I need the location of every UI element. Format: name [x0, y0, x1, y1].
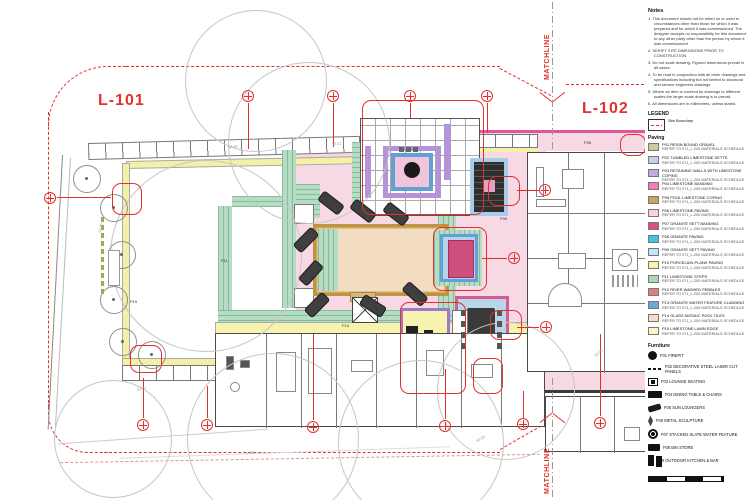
- paving-swatch-P10: [648, 261, 659, 269]
- keynote-bubble: [517, 418, 529, 430]
- paving-ref: REFER TO 071_L-200 MATERIALS SCHEDULE: [662, 147, 744, 151]
- furniture-legend-row-F01: F01 FIREPIT: [648, 351, 748, 360]
- keynote-leader: [313, 334, 314, 420]
- keynote-bubble: [439, 420, 451, 432]
- paving-swatch-P15: [648, 327, 659, 335]
- paving-swatch-P02: [648, 156, 659, 164]
- keynote-leader: [517, 327, 539, 328]
- metal-sculpture: [108, 250, 120, 286]
- slab-path-right: [478, 134, 538, 148]
- furniture-label: F03 LOUNGE SEATING: [661, 379, 705, 384]
- furniture-legend-row-F03: F03 LOUNGE SEATING: [648, 377, 748, 386]
- furniture-legend-title: Furniture: [648, 343, 748, 349]
- dining-chair: [497, 343, 502, 349]
- stair-hatch: [612, 275, 638, 287]
- site-boundary-line: [566, 84, 654, 85]
- furniture-legend-row-F08: F08 BIN STORE: [648, 443, 748, 452]
- furniture-legend-list: F01 FIREPITF02 DECORATIVE STEEL LASER CU…: [648, 351, 748, 464]
- keynote-leader: [143, 378, 144, 418]
- furniture-label: F04 DINING TABLE & CHAIRS: [665, 392, 722, 397]
- notes-title: Notes: [648, 8, 748, 14]
- tree-center: [85, 177, 88, 180]
- paving-legend-row-P08: P08 GRANITE PAVINGREFER TO 071_L-200 MAT…: [648, 235, 748, 246]
- revision-cloud: [490, 310, 522, 340]
- site-boundary-label: Site Boundary: [668, 119, 693, 124]
- paving-code-label: P10: [342, 323, 349, 328]
- title-block-panel: Notes 1. This document should not be rel…: [645, 0, 750, 500]
- paving-code-label: P15: [130, 299, 137, 304]
- metal-sculpture-icon: [648, 415, 653, 426]
- paving-swatch-P04: [648, 182, 659, 190]
- dining-table-indoor: [558, 253, 586, 269]
- paving-ref: REFER TO 071_L-200 MATERIALS SCHEDULE: [662, 161, 744, 165]
- paving-ref: REFER TO 071_L-200 MATERIALS SCHEDULE: [662, 306, 744, 310]
- keynote-leader: [523, 391, 524, 418]
- furniture-legend-row-F09: F09 OUTDOOR KITCHEN & BAR: [648, 456, 748, 465]
- keynote-bubble: [201, 419, 213, 431]
- revision-cloud: [433, 227, 487, 291]
- paving-labels: P07 GRANITE SETT BANDINGREFER TO 071_L-2…: [662, 222, 744, 231]
- furniture-legend-row-F04: F04 DINING TABLE & CHAIRS: [648, 391, 748, 400]
- paving-ref: REFER TO 071_L-200 MATERIALS SCHEDULE: [662, 200, 744, 204]
- tree-center: [120, 253, 123, 256]
- paving-legend-row-P02: P02 TUMBLED LIMESTONE SETTSREFER TO 071_…: [648, 156, 748, 167]
- paving-code-label: P06: [584, 140, 591, 145]
- keynote-bubble: [307, 421, 319, 433]
- paving-labels: P10 PORCELAIN PLANK PAVINGREFER TO 071_L…: [662, 261, 744, 270]
- keynote-bubble: [44, 192, 56, 204]
- paving-swatch-P03: [648, 169, 659, 177]
- matchline-mark: [553, 92, 565, 102]
- keynote-leader: [482, 258, 507, 259]
- paving-swatch-P11: [648, 275, 659, 283]
- furniture-label: F01 FIREPIT: [660, 353, 684, 358]
- paving-swatch-P08: [648, 235, 659, 243]
- keynote-leader: [57, 197, 111, 198]
- paving-swatch-P09: [648, 248, 659, 256]
- spot-level-label: 52.90: [245, 451, 255, 455]
- paving-legend-title: Paving: [648, 135, 748, 141]
- revision-cloud: [362, 100, 484, 215]
- paving-legend-row-P12: P12 RIVER WASHED PEBBLESREFER TO 071_L-2…: [648, 288, 748, 299]
- paving-labels: P06 LIMESTONE PAVINGREFER TO 071_L-200 M…: [662, 209, 744, 218]
- revision-cloud: [473, 358, 503, 394]
- keynote-leader: [333, 103, 334, 147]
- note-item-1: 1. This document should not be relied on…: [648, 16, 748, 46]
- note-item-4: 4. To be read in conjunction with all ot…: [648, 72, 748, 87]
- paving-labels: P13 GRANITE WATER FEATURE CLADDINGREFER …: [662, 301, 744, 310]
- keynote-leader: [445, 369, 446, 419]
- paving-labels: P01 RESIN BOUND GRAVELREFER TO 071_L-200…: [662, 143, 744, 152]
- keynote-bubble: [327, 90, 339, 102]
- tree-center: [112, 298, 115, 301]
- notes-list: 1. This document should not be relied on…: [648, 16, 748, 106]
- keynote-leader: [487, 103, 488, 133]
- keynote-leader: [207, 386, 208, 418]
- paving-legend-row-P14: P14 GLASS MOSAIC POOL TILESREFER TO 071_…: [648, 314, 748, 325]
- paving-legend-row-P15: P15 LIMESTONE LAWN EDGEREFER TO 071_L-20…: [648, 327, 748, 338]
- furniture-label: F05 SUN LOUNGERS: [664, 405, 705, 410]
- paving-ref: REFER TO 071_L-200 MATERIALS SCHEDULE: [662, 213, 744, 217]
- paving-swatch-P06: [648, 209, 659, 217]
- keynote-leader: [248, 103, 249, 149]
- matchline-label-top: MATCHLINE: [544, 10, 551, 80]
- paving-legend-list: P01 RESIN BOUND GRAVELREFER TO 071_L-200…: [648, 143, 748, 338]
- furniture-legend-row-F07: F07 STACKED SLATE WATER FEATURE: [648, 430, 748, 439]
- paving-labels: P08 GRANITE PAVINGREFER TO 071_L-200 MAT…: [662, 235, 744, 244]
- furniture-legend-row-F02: F02 DECORATIVE STEEL LASER CUT PANELS: [648, 364, 748, 373]
- furniture-label: F08 BIN STORE: [663, 445, 693, 450]
- furniture-label: F09 OUTDOOR KITCHEN & BAR: [657, 458, 719, 463]
- furniture-outline: [351, 360, 373, 372]
- paving-legend-row-P05: P05 POOL LIMESTONE COPINGREFER TO 071_L-…: [648, 196, 748, 207]
- paving-labels: P15 LIMESTONE LAWN EDGEREFER TO 071_L-20…: [662, 327, 744, 336]
- paving-legend-row-P03: P03 RETAINING WALLS WITH LIMESTONE COPIN…: [648, 169, 748, 180]
- keynote-bubble: [539, 184, 551, 196]
- keynote-leader: [517, 190, 539, 191]
- lounge-seating-icon: [648, 378, 658, 386]
- paving-swatch-P05: [648, 196, 659, 204]
- dining-table-icon: [648, 391, 662, 398]
- sofa-outline: [536, 199, 566, 207]
- keynote-bubble: [540, 321, 552, 333]
- paving-ref: REFER TO 071_L-200 MATERIALS SCHEDULE: [662, 279, 744, 283]
- paving-ref: REFER TO 071_L-200 MATERIALS SCHEDULE: [662, 319, 744, 323]
- paving-code-label: P11: [221, 258, 228, 263]
- paving-code-label: P06: [500, 216, 507, 221]
- revision-cloud: [400, 302, 466, 394]
- paving-swatch-P07: [648, 222, 659, 230]
- bay-window: [548, 283, 582, 307]
- paving-labels: P04 LIMESTONE BANDINGREFER TO 071_L-200 …: [662, 182, 744, 191]
- paving-legend-row-P04: P04 LIMESTONE BANDINGREFER TO 071_L-200 …: [648, 182, 748, 193]
- revision-cloud: [130, 345, 162, 373]
- keynote-bubble: [137, 419, 149, 431]
- keynote-bubble: [404, 90, 416, 102]
- paving-labels: P12 RIVER WASHED PEBBLESREFER TO 071_L-2…: [662, 288, 744, 297]
- paving-label: P03 RETAINING WALLS WITH LIMESTONE COPIN…: [662, 169, 748, 178]
- keynote-bubble: [242, 90, 254, 102]
- retaining-wall-line: [55, 158, 71, 428]
- paving-ref: REFER TO 071_L-200 MATERIALS SCHEDULE: [662, 332, 744, 336]
- site-plan: MATCHLINE MATCHLINE L-101 L-102 P06P06P1…: [0, 0, 750, 500]
- sun-lounger-icon: [647, 403, 661, 412]
- paving-labels: P02 TUMBLED LIMESTONE SETTSREFER TO 071_…: [662, 156, 744, 165]
- tree-canopy-circle: [54, 380, 172, 498]
- pool-steps: [318, 229, 338, 291]
- paving-ref: REFER TO 071_L-200 MATERIALS SCHEDULE: [662, 266, 744, 270]
- furniture-legend-row-F05: F05 SUN LOUNGERS: [648, 404, 748, 413]
- note-item-3: 3. Do not scale drawing. Figured dimensi…: [648, 60, 748, 70]
- paving-labels: P09 GRANITE SETT PAVINGREFER TO 071_L-20…: [662, 248, 744, 257]
- furniture-label: F02 DECORATIVE STEEL LASER CUT PANELS: [665, 364, 748, 374]
- sheet-label-l102: L-102: [582, 100, 629, 118]
- kitchen-sink: [618, 253, 632, 267]
- revision-cloud: [112, 183, 142, 215]
- keynote-leader: [600, 334, 601, 416]
- furniture-label: F07 STACKED SLATE WATER FEATURE: [661, 432, 737, 437]
- paving-labels: P14 GLASS MOSAIC POOL TILESREFER TO 071_…: [662, 314, 744, 323]
- paving-swatch-P13: [648, 301, 659, 309]
- sheet-label-l101: L-101: [98, 92, 145, 110]
- site-boundary-swatch: [648, 119, 665, 131]
- legend-title: LEGEND: [648, 111, 748, 117]
- paving-ref: REFER TO 071_L-200 MATERIALS SCHEDULE: [662, 240, 744, 244]
- spot-level-label: 53.21: [332, 142, 342, 146]
- bin-store-icon: [648, 444, 660, 451]
- keynote-leader: [410, 103, 411, 118]
- paving-swatch-P14: [648, 314, 659, 322]
- note-item-6: 6. All dimensions are in millimetres, un…: [648, 101, 748, 106]
- paving-label: P13 GRANITE WATER FEATURE CLADDING: [662, 301, 744, 306]
- paving-legend-row-P10: P10 PORCELAIN PLANK PAVINGREFER TO 071_L…: [648, 261, 748, 272]
- paving-ref: REFER TO 071_L-200 MATERIALS SCHEDULE: [662, 187, 744, 191]
- paving-labels: P05 POOL LIMESTONE COPINGREFER TO 071_L-…: [662, 196, 744, 205]
- paving-legend-row-P11: P11 LIMESTONE STEPSREFER TO 071_L-200 MA…: [648, 275, 748, 286]
- paving-legend-row-P01: P01 RESIN BOUND GRAVELREFER TO 071_L-200…: [648, 143, 748, 154]
- spot-level-label: 52.60: [228, 145, 238, 150]
- keynote-bubble: [508, 252, 520, 264]
- paving-ref: REFER TO 071_L-200 MATERIALS SCHEDULE: [662, 227, 744, 231]
- paving-labels: P11 LIMESTONE STEPSREFER TO 071_L-200 MA…: [662, 275, 744, 284]
- legend-site-boundary: Site Boundary: [648, 119, 748, 130]
- furniture-legend-row-F06: F06 METAL SCULPTURE: [648, 417, 748, 426]
- furniture-outline: [624, 427, 640, 441]
- paving-legend-row-P09: P09 GRANITE SETT PAVINGREFER TO 071_L-20…: [648, 248, 748, 259]
- furniture-label: F06 METAL SCULPTURE: [656, 418, 703, 423]
- lounge-table: [562, 169, 584, 189]
- revision-cloud: [488, 176, 520, 206]
- firepit-icon: [648, 351, 657, 360]
- revision-cloud: [620, 134, 646, 156]
- scale-bar: [648, 476, 724, 482]
- keynote-bubble: [594, 417, 606, 429]
- paving-swatch-P12: [648, 288, 659, 296]
- drawing-sheet: MATCHLINE MATCHLINE L-101 L-102 P06P06P1…: [0, 0, 750, 500]
- tree-center: [121, 340, 124, 343]
- paving-ref: REFER TO 071_L-200 MATERIALS SCHEDULE: [662, 253, 744, 257]
- paving-legend-row-P06: P06 LIMESTONE PAVINGREFER TO 071_L-200 M…: [648, 209, 748, 220]
- matchline-dashdot: [552, 2, 553, 150]
- paving-ref: REFER TO 071_L-200 MATERIALS SCHEDULE: [662, 292, 744, 296]
- paving-swatch-P01: [648, 143, 659, 151]
- site-boundary-line: [48, 112, 49, 408]
- paving-legend-row-P07: P07 GRANITE SETT BANDINGREFER TO 071_L-2…: [648, 222, 748, 233]
- note-item-2: 2. VERIFY SITE DIMENSIONS PRIOR TO CONST…: [648, 48, 748, 58]
- keynote-bubble: [481, 90, 493, 102]
- note-item-5: 5. Where an item is covered by drawings …: [648, 89, 748, 99]
- paving-legend-row-P13: P13 GRANITE WATER FEATURE CLADDINGREFER …: [648, 301, 748, 312]
- water-feature-icon: [648, 429, 658, 439]
- laser-cut-panel-icon: [648, 368, 662, 370]
- outdoor-kitchen-icon: [648, 455, 654, 466]
